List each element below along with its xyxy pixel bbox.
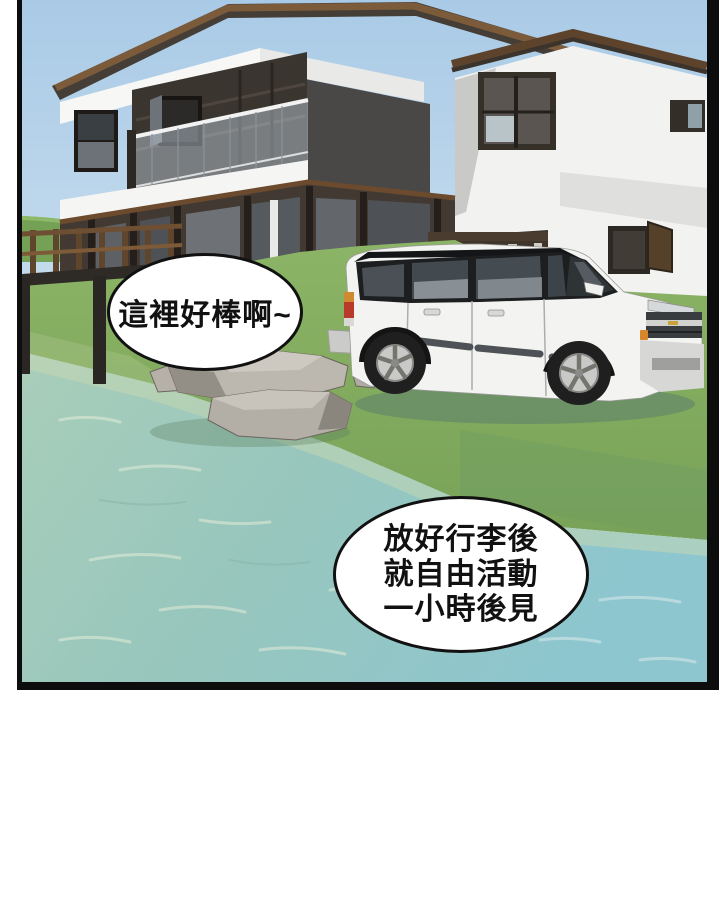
suv-door-handle-rear — [424, 309, 440, 315]
suv-front-bumper — [640, 340, 704, 392]
glass-door-frame — [270, 200, 278, 260]
suv-door-handle-front — [488, 310, 504, 316]
speech-bubble-2-line-2: 就自由活動 — [384, 557, 539, 592]
speech-bubble-2-line-1: 放好行李後 — [384, 522, 539, 557]
speech-bubble-1: 這裡好棒啊~ — [107, 253, 303, 371]
comic-page: 這裡好棒啊~ 放好行李後 就自由活動 一小時後見 — [0, 0, 720, 899]
suv-marker-light — [640, 330, 648, 340]
window-shuttered — [608, 222, 672, 274]
speech-bubble-2-text: 放好行李後 就自由活動 一小時後見 — [384, 522, 539, 627]
suv-grille — [646, 312, 702, 338]
speech-bubble-2-line-3: 一小時後見 — [384, 592, 539, 627]
window-large — [478, 72, 556, 150]
speech-bubble-2: 放好行李後 就自由活動 一小時後見 — [333, 496, 589, 653]
speech-bubble-1-text: 這裡好棒啊~ — [118, 290, 292, 334]
page-margin-bottom — [0, 690, 720, 899]
window-upper-left — [74, 110, 118, 172]
suv-taillight — [344, 292, 354, 326]
window-small-right — [670, 100, 705, 132]
